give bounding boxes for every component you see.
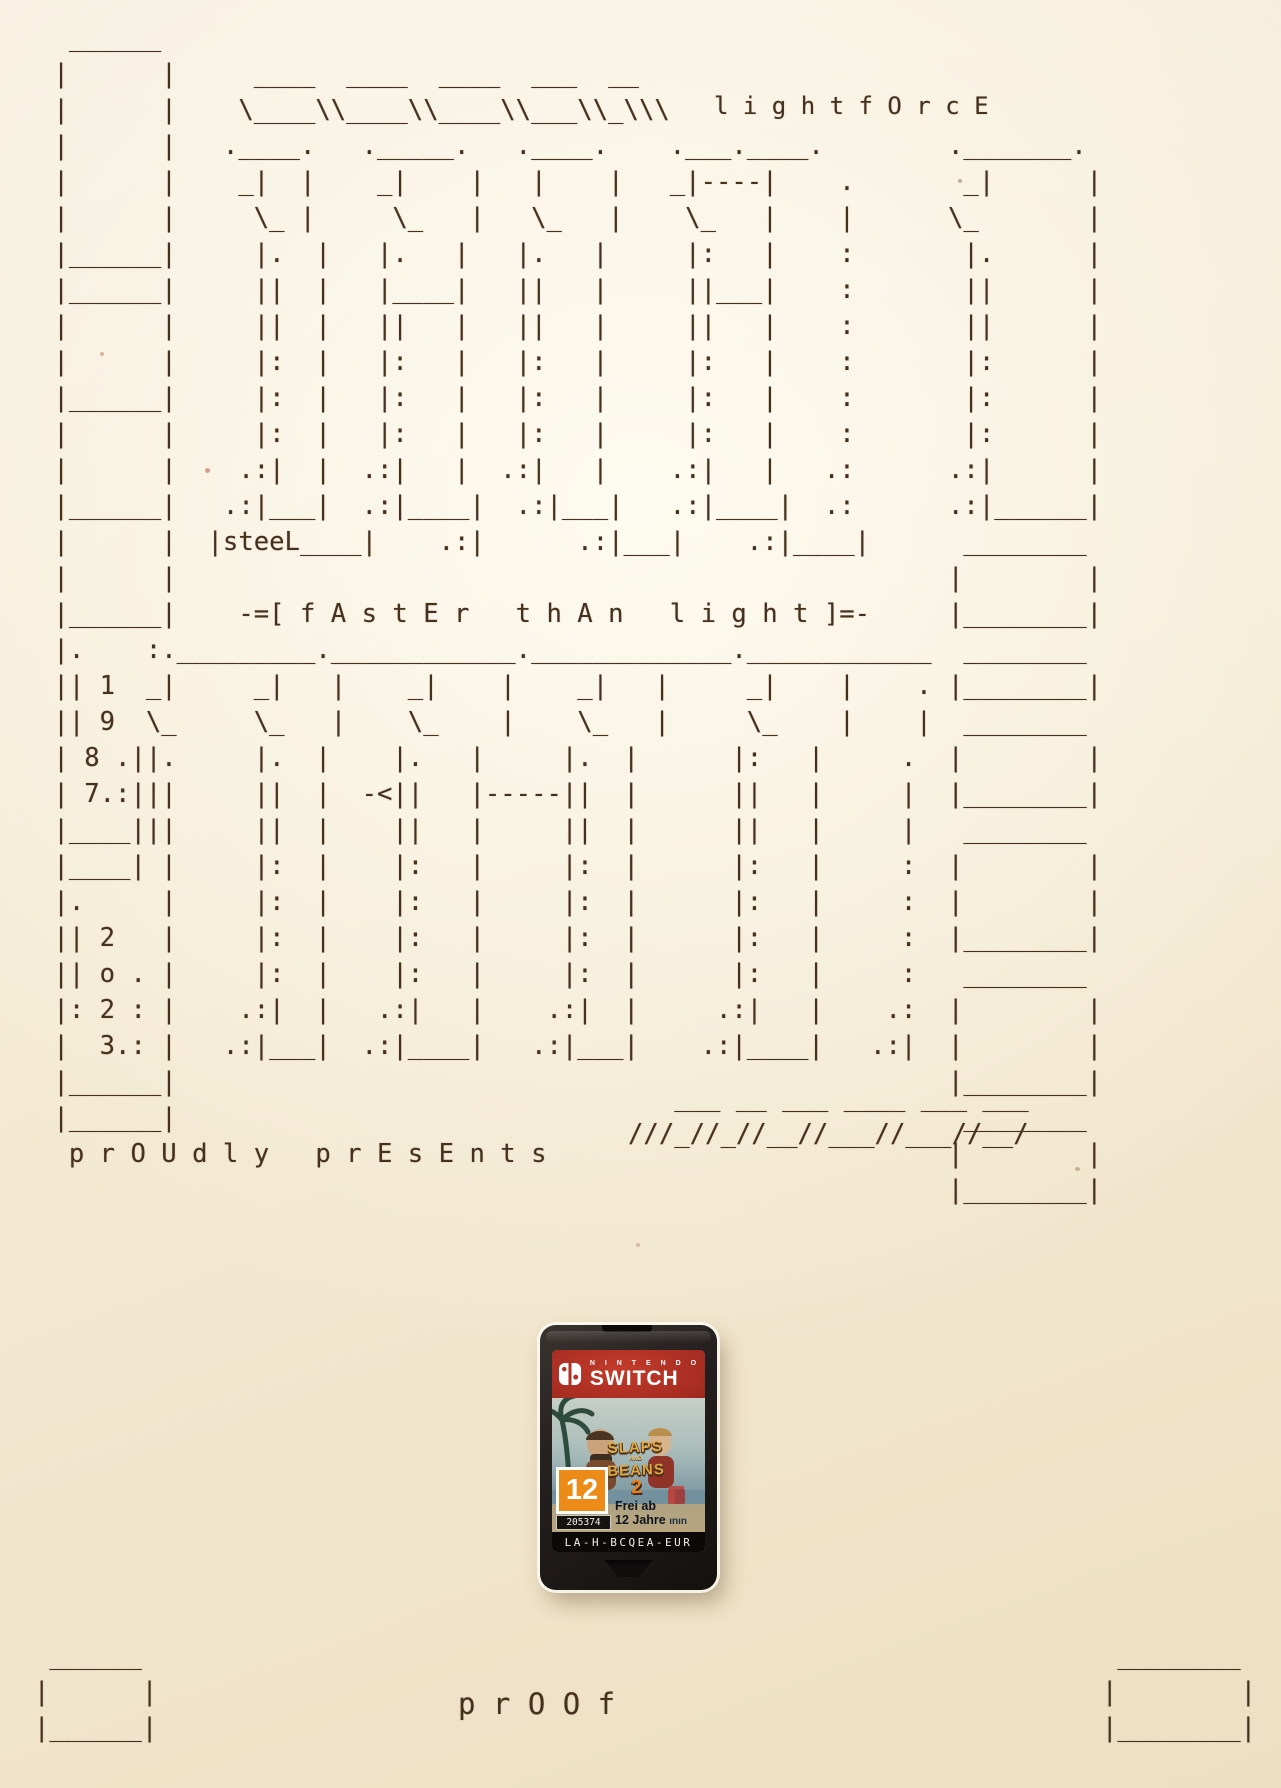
- cartridge-bottom-groove: [605, 1560, 653, 1577]
- usk-code-number: 205374: [566, 1517, 600, 1528]
- lightforce-wordmark: l i g h t f O r c E: [714, 88, 989, 124]
- paper-speck: [958, 179, 962, 183]
- bottom-right-corner-box: ________ | | |________|: [1102, 1638, 1256, 1746]
- paper-speck: [205, 468, 210, 473]
- frei-ab-extra: ının: [669, 1516, 687, 1527]
- cartridge-code-strip: LA-H-BCQEA-EUR: [552, 1532, 705, 1552]
- bottom-left-corner-box: ______ | | |______|: [34, 1638, 157, 1746]
- mini-slash-logo: ___ __ ___ ____ ___ ___ ///_//_//__//___…: [628, 1080, 1029, 1152]
- paper-speck: [100, 352, 104, 356]
- frei-ab-line2: 12 Jahre ının: [615, 1513, 687, 1529]
- main-logo-art: ______ | | ____ ____ ____ ___ __ | | \__…: [38, 20, 932, 1172]
- publisher-mini-logo: [668, 1489, 685, 1504]
- paper-speck: [636, 1243, 640, 1247]
- nintendo-switch-band: N I N T E N D O SWITCH: [552, 1350, 705, 1398]
- usk-code-bar: 205374: [556, 1515, 611, 1530]
- usk-rating-number: 12: [566, 1474, 598, 1507]
- usk-12-rating-badge: 12: [556, 1467, 608, 1514]
- proof-wordmark: p r O O f: [458, 1686, 615, 1722]
- cartridge-shine: [546, 1331, 711, 1343]
- brand-switch: SWITCH: [590, 1368, 679, 1389]
- switch-logo-icon: [557, 1361, 583, 1387]
- cartridge-code: LA-H-BCQEA-EUR: [565, 1536, 693, 1549]
- switch-cartridge: N I N T E N D O SWITCH: [540, 1325, 717, 1590]
- paper-speck: [1075, 1167, 1080, 1171]
- cartridge-label: N I N T E N D O SWITCH: [552, 1350, 705, 1552]
- paper-background: ______ | | ____ ____ ____ ___ __ | | \__…: [0, 0, 1281, 1788]
- right-filmstrip: ._______. _| | \_ | |. | || | || | |: | …: [948, 128, 1102, 1208]
- brand-nintendo: N I N T E N D O: [590, 1360, 700, 1367]
